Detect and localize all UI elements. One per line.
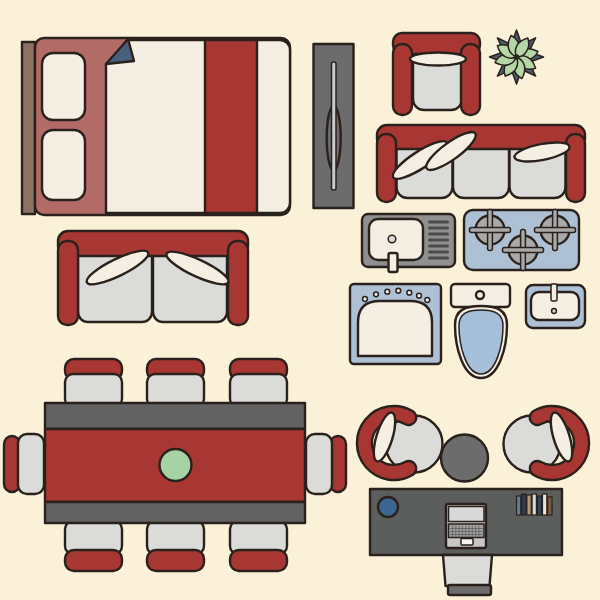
book-spine [517,496,521,515]
office-lounge-chair [357,406,443,480]
office-chair-back-bar [448,585,491,595]
loveseat-back [58,231,248,256]
kitchen-sink-faucet [389,253,398,272]
bed-sheet [106,40,290,213]
toilet [451,284,510,378]
armchair-arm [461,44,480,115]
kitchen-sink-drain [388,235,396,243]
dining-table-edge [45,403,305,429]
book-spine [543,494,547,515]
office-chair [443,555,492,595]
armchair-pillow [410,53,466,66]
bathroom-sink-faucet [551,284,557,301]
book-spine [532,494,536,515]
bed [22,38,290,215]
book-spine [548,497,552,515]
loveseat-arm [58,241,78,325]
armchair-arm [393,44,412,115]
illustration-canvas [0,0,600,600]
bed-pillow [42,130,85,200]
wardrobe-handle [332,62,337,190]
office-stool [441,435,488,482]
kitchen-sink [362,214,455,272]
dining-table-edge [45,502,305,523]
office-set [357,406,589,595]
bed-headboard [22,42,35,214]
furniture-icon-set [0,0,600,600]
wardrobe [314,44,354,208]
dining-chair [147,521,204,571]
vanity-basin [358,301,432,356]
loveseat [58,231,248,325]
book-spine [522,494,526,515]
toilet-button [476,291,484,299]
dining-chair [306,434,346,494]
bathroom-sink [526,284,585,328]
laptop-trackpad [461,539,473,546]
plant-center [514,54,520,60]
dining-table-plate [160,449,192,481]
bed-pillow [42,53,85,120]
plant [490,30,544,84]
sofa-arm [377,134,396,202]
dining-chair [65,359,122,407]
dining-chair [147,359,204,407]
dining-chair [4,434,44,494]
sofa [377,125,585,202]
stove [464,210,579,271]
book-spine [527,495,531,515]
dining-chair [230,521,287,571]
desk-books [517,494,553,515]
office-lounge-chair [504,406,590,480]
dining-table [4,359,346,571]
desk-plate [378,497,398,517]
laptop [446,504,486,548]
bed-blanket-stripe [205,40,257,213]
dining-chair [65,521,122,571]
dining-chair [230,359,287,407]
bathroom-sink-drain [552,309,557,314]
loveseat-arm [228,241,248,325]
laptop-screen [449,507,485,522]
office-chair-seat [443,555,492,586]
armchair [393,33,480,115]
vanity-sink [350,284,441,364]
book-spine [537,496,541,515]
